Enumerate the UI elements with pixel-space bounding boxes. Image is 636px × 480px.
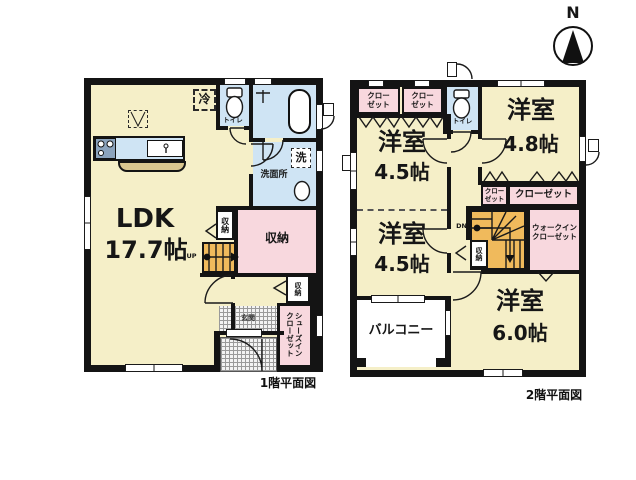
window-arc-toilet-2f (457, 64, 472, 79)
window (371, 295, 425, 303)
room-nw-size: 4.5帖 (359, 161, 445, 184)
window (316, 315, 323, 337)
toilet-label-2f: トイレ (447, 117, 478, 126)
window (316, 150, 323, 172)
closet-hall-label-1f: 収納 (286, 275, 310, 303)
room-ne-size: 4.8帖 (484, 133, 578, 156)
fridge-label: 冷 (193, 89, 216, 111)
wic-label: ウォークイン クローゼット (530, 222, 579, 244)
front-door-opening (226, 329, 262, 337)
casement-window-flap (588, 139, 599, 152)
closet-d-label: クローゼット (509, 188, 578, 203)
wall (231, 273, 235, 279)
wall (466, 206, 579, 210)
casement-window-flap (447, 62, 457, 77)
wall (249, 85, 253, 142)
room-se-name: 洋室 (466, 288, 574, 315)
counter-top (118, 161, 186, 172)
room-nw-name: 洋室 (359, 129, 445, 156)
storage-label-1f: 収納 (238, 231, 316, 247)
floorplan-canvas: 冷 (0, 0, 636, 480)
closet-b-label: クロー ゼット (403, 88, 442, 113)
window (445, 310, 451, 336)
window (497, 80, 545, 87)
closet-upper-label-1f: 収納 (216, 210, 234, 240)
balcony-pier (436, 358, 445, 367)
wall (445, 336, 451, 367)
window (483, 369, 523, 377)
wall (447, 167, 451, 229)
toilet-label-1f: トイレ (218, 116, 248, 125)
wall (471, 130, 482, 134)
porch-hatch (220, 337, 277, 372)
room-ne-name: 洋室 (486, 97, 576, 124)
room-se-size: 6.0帖 (466, 322, 574, 345)
north-arrow-icon (562, 30, 584, 63)
wall (283, 138, 316, 142)
room-sw-name: 洋室 (359, 221, 445, 248)
ldk-name: LDK (98, 205, 192, 235)
kitchen-sink-icon (147, 140, 183, 157)
closet-a-label: クロー ゼット (358, 88, 399, 113)
washroom-label: 洗面所 (251, 169, 297, 181)
entrance-label: 玄関 (230, 313, 266, 323)
shoe-closet-label: シューズイン クローゼット (279, 306, 308, 363)
wall (482, 181, 579, 185)
stove-icon (95, 138, 116, 159)
compass-north-label: N (562, 3, 584, 23)
window (368, 80, 384, 87)
window (125, 364, 183, 372)
window (316, 104, 323, 130)
dining-marker (128, 110, 148, 128)
window-arc-room-ne (586, 152, 599, 165)
stairs-up-label: UP (183, 252, 200, 261)
wall (216, 126, 228, 130)
bathtub-icon (288, 89, 311, 134)
window (579, 136, 586, 162)
casement-window-flap (323, 103, 334, 116)
room-sw-size: 4.5帖 (359, 253, 445, 276)
casement-window-flap (342, 155, 351, 171)
balcony-label: バルコニー (359, 323, 443, 340)
room-divider-dashed (357, 209, 447, 211)
wall (357, 114, 451, 118)
window (414, 80, 430, 87)
closet-stairs-label: 収納 (470, 241, 488, 267)
wall (253, 138, 265, 142)
wall (445, 300, 451, 310)
closet-c-label: クロー ゼット (482, 186, 507, 205)
stairs-dn-label: DN (453, 222, 470, 231)
window (254, 78, 272, 85)
floor1-caption: 1階平面図 (250, 374, 326, 389)
window (350, 228, 357, 256)
window (350, 152, 357, 190)
window (224, 78, 246, 85)
balcony-pier (357, 358, 366, 367)
wall (447, 253, 451, 273)
stairs-1f (202, 242, 238, 273)
floor2-caption: 2階平面図 (516, 386, 592, 401)
wall (481, 270, 579, 274)
washer-label: 洗 (291, 148, 311, 168)
